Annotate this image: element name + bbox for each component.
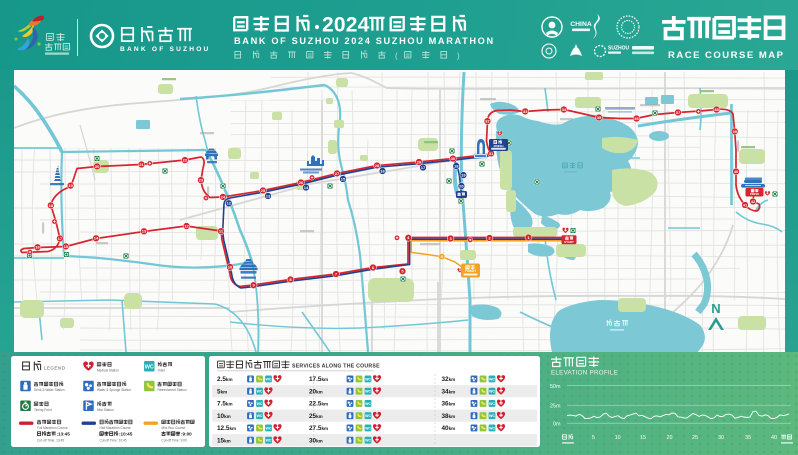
svg-text:2024: 2024 <box>322 14 370 37</box>
svg-text:30: 30 <box>718 435 724 441</box>
svg-text:38km: 38km <box>442 413 456 420</box>
svg-text:17: 17 <box>421 165 426 170</box>
svg-text:28: 28 <box>375 163 380 168</box>
svg-text:WC: WC <box>266 439 272 443</box>
svg-text:41: 41 <box>743 202 748 207</box>
svg-text:WC: WC <box>365 414 371 418</box>
svg-text::10:45: :10:45 <box>119 431 133 436</box>
svg-text:40km: 40km <box>442 425 456 432</box>
svg-text:Full Marathon Course: Full Marathon Course <box>37 426 68 430</box>
svg-text:35: 35 <box>597 115 602 120</box>
svg-text:27.5km: 27.5km <box>309 425 328 432</box>
svg-text:16: 16 <box>35 245 40 250</box>
svg-text:29: 29 <box>417 159 422 164</box>
svg-text:14: 14 <box>304 185 309 190</box>
svg-text:10km: 10km <box>217 413 231 420</box>
svg-text:RACE COURSE MAP: RACE COURSE MAP <box>668 50 784 61</box>
svg-text:Mist Station: Mist Station <box>97 408 114 412</box>
svg-text:WC: WC <box>489 390 495 394</box>
svg-text:SERVICES ALONG THE COURSE: SERVICES ALONG THE COURSE <box>292 364 380 370</box>
svg-text:BANK OF SUZHOU 2024 SUZHOU MAR: BANK OF SUZHOU 2024 SUZHOU MARATHON <box>234 36 495 46</box>
svg-text:15: 15 <box>64 244 69 249</box>
svg-text:31: 31 <box>489 151 494 156</box>
svg-text:WC: WC <box>266 377 272 381</box>
svg-text:Water & Sponge Station: Water & Sponge Station <box>97 388 131 392</box>
svg-text:15km: 15km <box>217 437 231 444</box>
svg-text:12: 12 <box>227 201 232 206</box>
svg-text:10: 10 <box>615 435 621 441</box>
svg-text:25km: 25km <box>309 413 323 420</box>
svg-text:36: 36 <box>634 116 639 121</box>
svg-text:19: 19 <box>461 173 466 178</box>
svg-text:CHINA: CHINA <box>570 21 592 28</box>
svg-text::9:00: :9:00 <box>181 431 192 436</box>
svg-text:10: 10 <box>228 264 233 269</box>
svg-text:FINISH: FINISH <box>465 269 476 273</box>
svg-text:37: 37 <box>676 110 681 115</box>
svg-text:32: 32 <box>485 119 490 124</box>
svg-text:30: 30 <box>451 156 456 161</box>
svg-text:): ) <box>457 52 460 61</box>
svg-text:12: 12 <box>184 223 189 228</box>
svg-text:15: 15 <box>640 435 646 441</box>
svg-text:5km: 5km <box>217 388 227 395</box>
svg-text:Mini Run Course: Mini Run Course <box>162 426 186 430</box>
svg-text:Cut-off Time: 10:45: Cut-off Time: 10:45 <box>100 439 127 443</box>
svg-text:FINISH: FINISH <box>750 192 759 196</box>
svg-text:ELEVATION PROFILE: ELEVATION PROFILE <box>551 370 618 377</box>
svg-text:15: 15 <box>341 176 346 181</box>
svg-text:WC: WC <box>365 439 371 443</box>
svg-text:13: 13 <box>142 229 147 234</box>
svg-text:WC: WC <box>365 426 371 430</box>
svg-text:Timing Point: Timing Point <box>34 408 52 412</box>
svg-text:42: 42 <box>751 199 756 204</box>
svg-text:WC: WC <box>365 390 371 394</box>
svg-text:BANK OF SUZHOU: BANK OF SUZHOU <box>120 46 211 53</box>
svg-text:19: 19 <box>68 183 73 188</box>
svg-text:N: N <box>711 301 720 316</box>
svg-text:33: 33 <box>523 109 528 114</box>
svg-text:5: 5 <box>592 435 595 441</box>
svg-text:WC: WC <box>365 402 371 406</box>
svg-text:40: 40 <box>771 435 777 441</box>
svg-text:39: 39 <box>732 129 737 134</box>
svg-text:WC: WC <box>257 402 263 406</box>
svg-text:Cut-off Time: 13:45: Cut-off Time: 13:45 <box>37 439 64 443</box>
svg-text:WC: WC <box>365 377 371 381</box>
svg-text:34: 34 <box>562 107 567 112</box>
svg-text:17.5km: 17.5km <box>309 376 328 383</box>
svg-text:36km: 36km <box>442 401 456 408</box>
svg-text:17: 17 <box>58 236 63 241</box>
svg-text:START: START <box>564 240 574 244</box>
svg-text:34km: 34km <box>442 388 456 395</box>
svg-text:24: 24 <box>221 194 226 199</box>
svg-text:27: 27 <box>335 171 340 176</box>
svg-text:Half Marathon Course: Half Marathon Course <box>100 426 131 430</box>
svg-text:WC: WC <box>266 426 272 430</box>
svg-text:12.5km: 12.5km <box>217 425 236 432</box>
svg-text:Refreshment Station: Refreshment Station <box>158 388 187 392</box>
svg-text:38: 38 <box>714 107 719 112</box>
svg-text:WC: WC <box>489 426 495 430</box>
svg-text:23: 23 <box>199 178 204 183</box>
svg-text:Drink & Water Station: Drink & Water Station <box>34 388 65 392</box>
svg-text:25: 25 <box>692 435 698 441</box>
svg-text:32km: 32km <box>442 376 456 383</box>
svg-text:(: ( <box>395 52 398 61</box>
svg-text:WC: WC <box>257 414 263 418</box>
svg-text:14: 14 <box>94 236 99 241</box>
svg-text:20: 20 <box>667 435 673 441</box>
svg-text:30km: 30km <box>309 437 323 444</box>
svg-text:SUZHOU: SUZHOU <box>608 46 630 52</box>
svg-text:WC: WC <box>489 402 495 406</box>
svg-text:13: 13 <box>266 193 271 198</box>
svg-text:Medical Station: Medical Station <box>97 369 119 373</box>
svg-text:WC: WC <box>489 377 495 381</box>
svg-text:16: 16 <box>380 168 385 173</box>
svg-text:20: 20 <box>95 164 100 169</box>
svg-text:FINISH: FINISH <box>494 144 504 148</box>
svg-text:0m: 0m <box>553 422 561 428</box>
svg-text:18: 18 <box>49 203 54 208</box>
svg-text:25m: 25m <box>550 404 561 410</box>
svg-text:50m: 50m <box>550 384 561 390</box>
svg-text:Toilet: Toilet <box>158 369 166 373</box>
svg-text:7.5km: 7.5km <box>217 401 233 408</box>
svg-text:40: 40 <box>734 169 739 174</box>
svg-text:LEGEND: LEGEND <box>44 366 66 371</box>
svg-text:22.5km: 22.5km <box>309 401 328 408</box>
svg-text::13:45: :13:45 <box>57 431 71 436</box>
svg-text:20km: 20km <box>309 388 323 395</box>
svg-text:21: 21 <box>139 162 144 167</box>
svg-text:Cut-off Time: 9:00: Cut-off Time: 9:00 <box>162 439 188 443</box>
svg-text:WC: WC <box>257 390 263 394</box>
svg-text:WC: WC <box>145 365 154 371</box>
svg-text:25: 25 <box>261 188 266 193</box>
svg-text:35: 35 <box>745 435 751 441</box>
svg-text:18: 18 <box>454 163 459 168</box>
svg-text:2.5km: 2.5km <box>217 376 233 383</box>
svg-text:20: 20 <box>459 183 464 188</box>
svg-text:WC: WC <box>489 414 495 418</box>
svg-text:22: 22 <box>183 158 188 163</box>
